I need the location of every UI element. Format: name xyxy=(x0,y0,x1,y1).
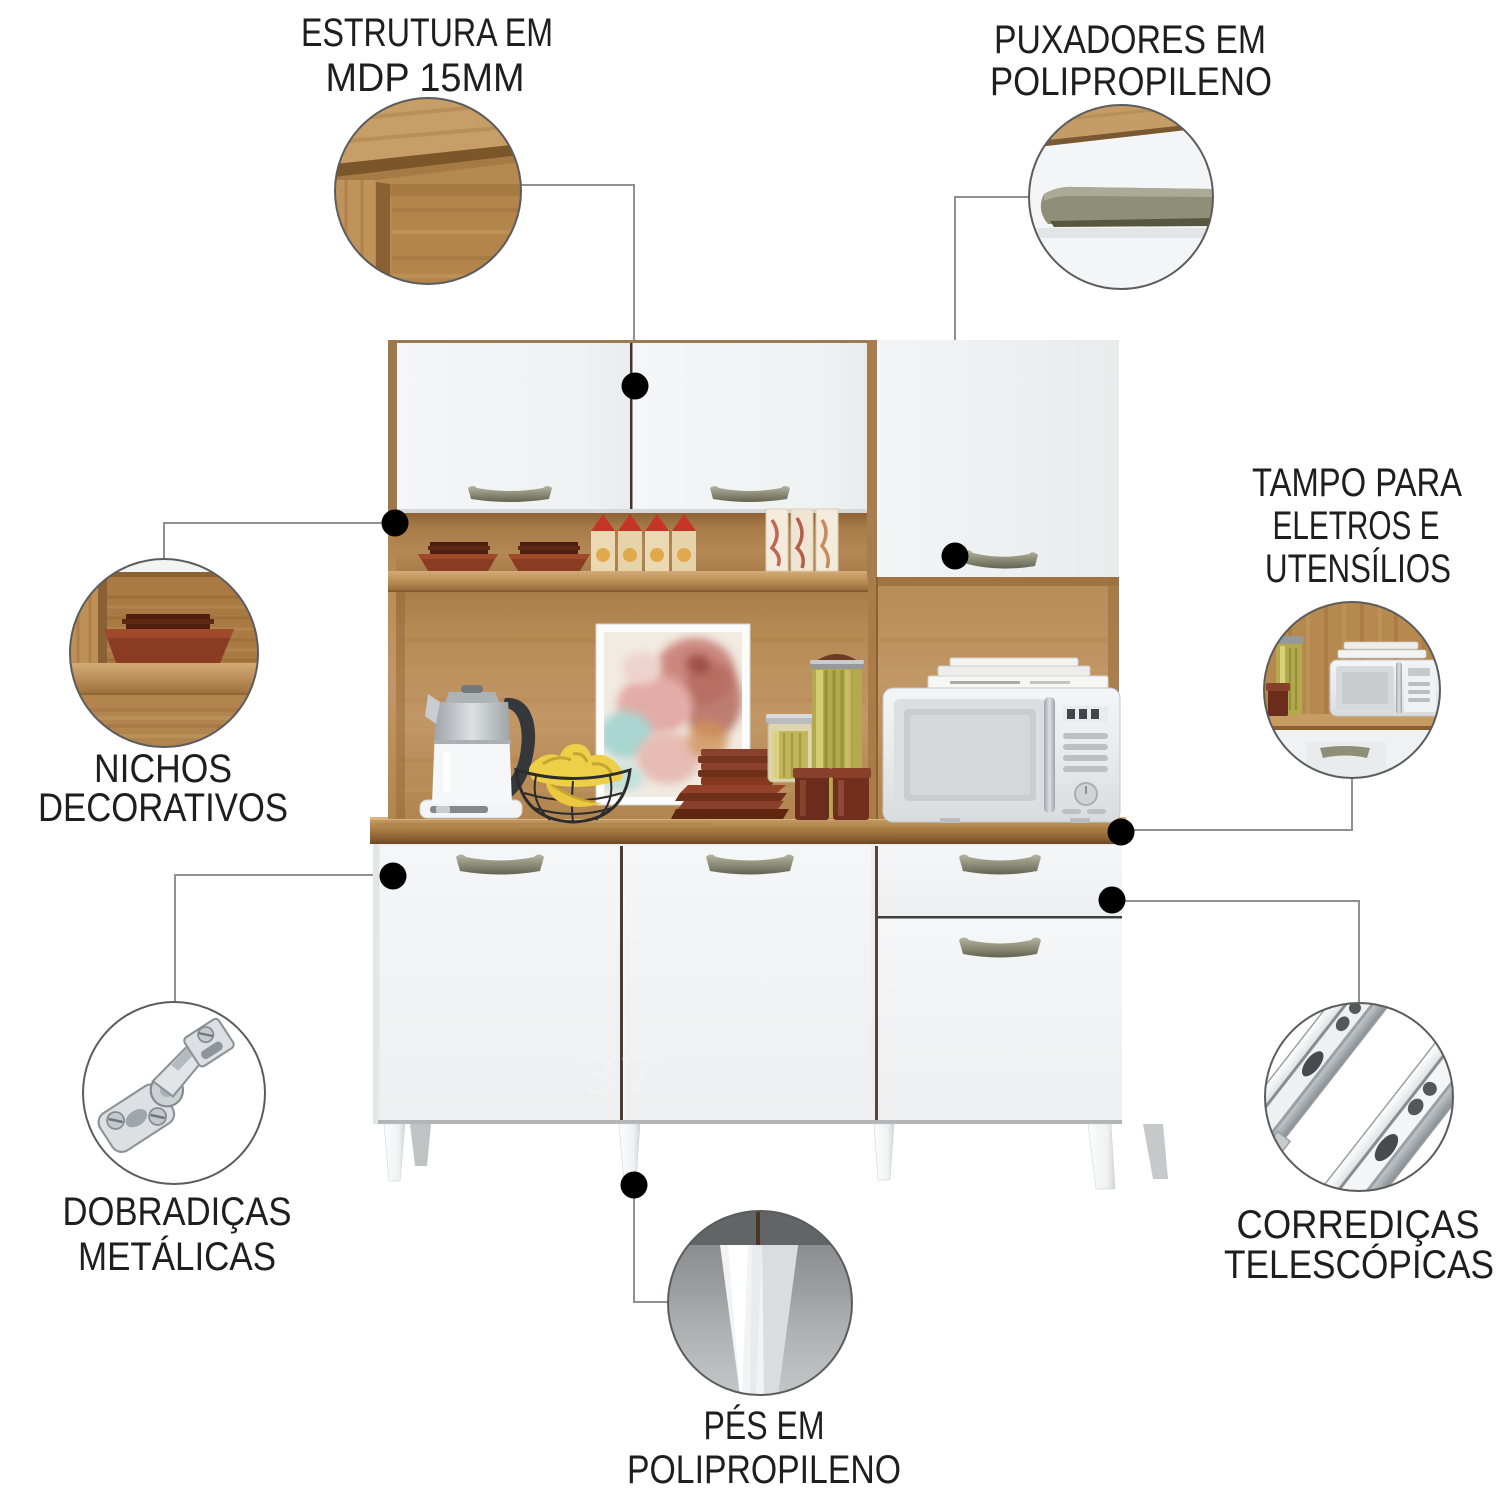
svg-text:37: 37 xyxy=(578,1047,660,1105)
svg-text:PÉS EM: PÉS EM xyxy=(704,1403,825,1448)
svg-text:DECORATIVOS: DECORATIVOS xyxy=(38,786,288,830)
svg-text:UTENSÍLIOS: UTENSÍLIOS xyxy=(1265,546,1451,591)
svg-text:DOBRADIÇAS: DOBRADIÇAS xyxy=(63,1190,292,1234)
svg-text:NICHOS: NICHOS xyxy=(94,747,232,791)
svg-text:ELETROS E: ELETROS E xyxy=(1273,504,1440,548)
svg-text:PUXADORES EM: PUXADORES EM xyxy=(994,18,1266,62)
svg-text:MDP 15MM: MDP 15MM xyxy=(326,56,525,100)
svg-text:METÁLICAS: METÁLICAS xyxy=(78,1234,276,1279)
svg-text:TELESCÓPICAS: TELESCÓPICAS xyxy=(1224,1242,1494,1287)
svg-text:CORREDIÇAS: CORREDIÇAS xyxy=(1237,1203,1480,1247)
svg-text:TAMPO PARA: TAMPO PARA xyxy=(1252,461,1462,505)
svg-text:ESTRUTURA EM: ESTRUTURA EM xyxy=(301,11,553,55)
svg-text:POLIPROPILENO: POLIPROPILENO xyxy=(627,1448,901,1492)
svg-text:POLIPROPILENO: POLIPROPILENO xyxy=(990,60,1272,104)
